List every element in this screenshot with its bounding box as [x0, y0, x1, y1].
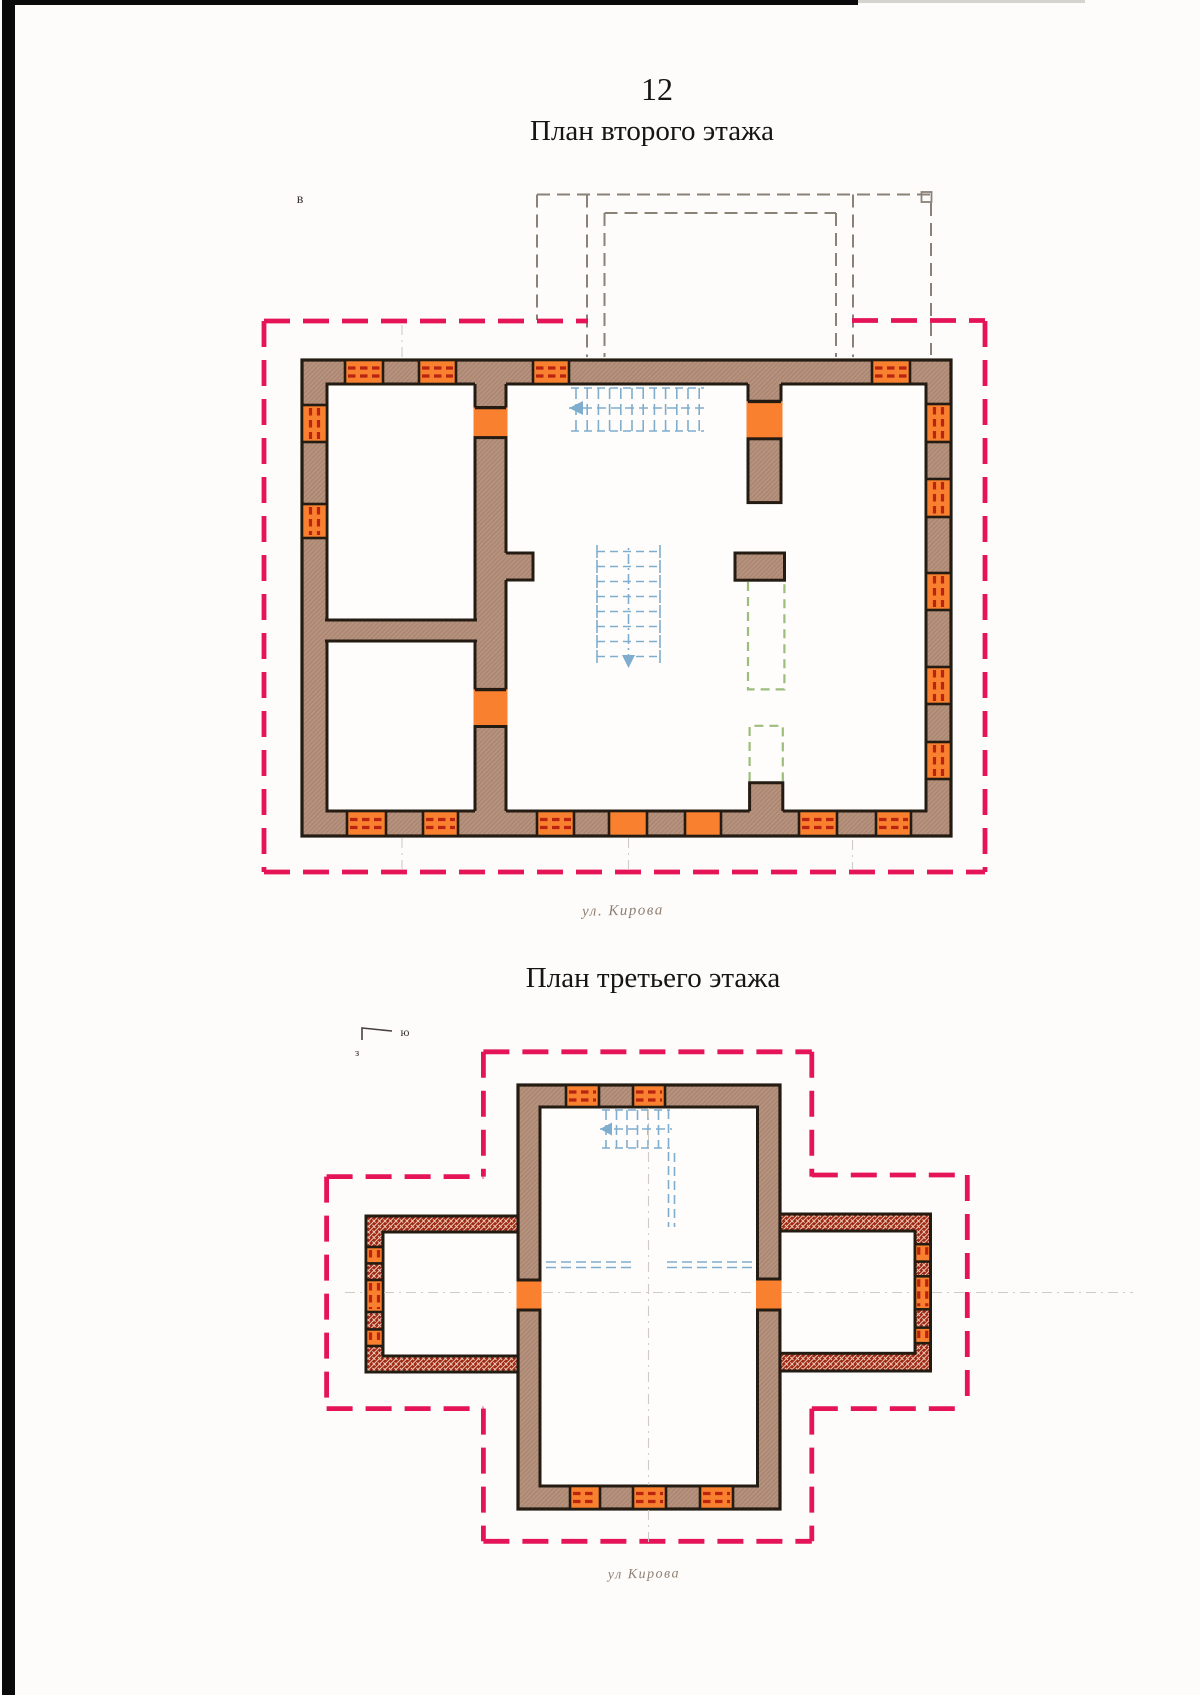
- svg-text:12: 12: [641, 71, 673, 107]
- svg-text:ул. Кирова: ул. Кирова: [580, 902, 664, 919]
- svg-text:в: в: [297, 192, 304, 207]
- svg-text:ул Кирова: ул Кирова: [606, 1566, 680, 1582]
- svg-text:План второго этажа: План второго этажа: [530, 115, 774, 147]
- svg-text:ю: ю: [401, 1025, 410, 1039]
- svg-text:з: з: [355, 1047, 359, 1059]
- svg-text:План третьего этажа: План третьего этажа: [526, 962, 781, 994]
